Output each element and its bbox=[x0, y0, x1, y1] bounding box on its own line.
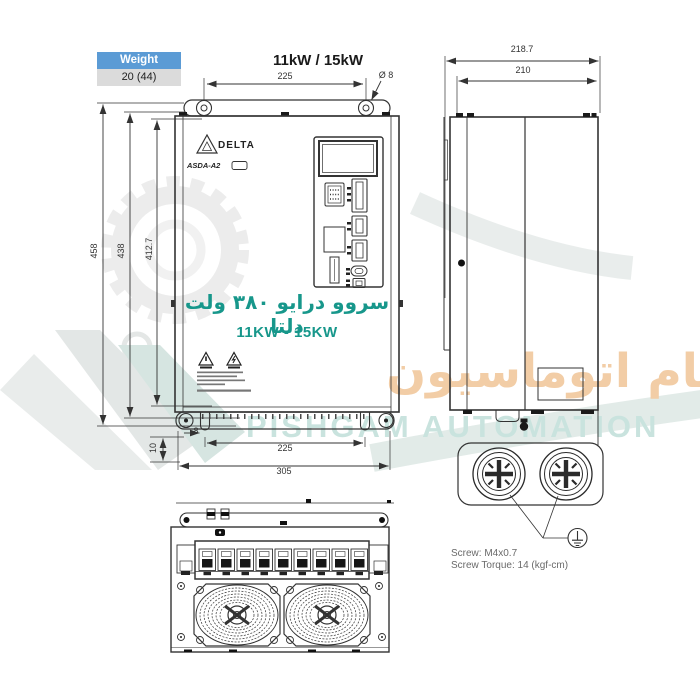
dim-bottom-hole-spacing: 225 bbox=[261, 444, 309, 454]
technical-drawing bbox=[0, 0, 700, 700]
dim-slot-width: 8 bbox=[189, 427, 203, 437]
warning-text-lines bbox=[197, 372, 251, 392]
page-background: پیشگام اتوماسیون PISHGAM AUTOMATION bbox=[0, 0, 700, 700]
ground-icon bbox=[568, 529, 587, 548]
dim-height-body: 438 bbox=[117, 229, 127, 273]
screw-torque-text: Screw Torque: 14 (kgf-cm) bbox=[451, 560, 568, 571]
dim-width-total: 305 bbox=[260, 467, 308, 477]
bottom-view-drawing bbox=[171, 499, 394, 652]
screw-spec-text: Screw: M4x0.7 bbox=[451, 548, 517, 559]
side-dimension-lines bbox=[445, 56, 600, 298]
screw-detail-drawing bbox=[458, 443, 603, 548]
dim-bottom-offset: 10 bbox=[149, 426, 159, 470]
weight-table: Weight 20 (44) bbox=[97, 52, 181, 86]
delta-logo-icon bbox=[197, 135, 217, 153]
weight-table-value: 20 (44) bbox=[97, 69, 181, 86]
front-view-drawing bbox=[171, 100, 403, 430]
page-title: 11kW / 15kW bbox=[238, 52, 398, 69]
terminal-block-drawing bbox=[177, 541, 388, 579]
screw-icon bbox=[473, 448, 592, 500]
fan-icon bbox=[194, 584, 370, 646]
delta-brand-text: DELTA bbox=[218, 140, 255, 151]
dim-height-total: 458 bbox=[90, 229, 100, 273]
dim-depth-body: 210 bbox=[499, 66, 547, 76]
dim-depth-total: 218.7 bbox=[494, 45, 550, 55]
dim-hole-diameter: Ø 8 bbox=[371, 71, 401, 81]
model-text: ASDA-A2 bbox=[187, 161, 220, 170]
dim-top-hole-spacing: 225 bbox=[261, 72, 309, 82]
power-range-caption: 11KW - 15KW bbox=[197, 324, 377, 341]
dim-mount-hole-spacing: 412.7 bbox=[145, 227, 155, 271]
warning-icon bbox=[199, 353, 241, 369]
weight-table-header: Weight bbox=[97, 52, 181, 69]
side-view-drawing bbox=[444, 113, 598, 446]
control-panel-drawing bbox=[314, 137, 383, 288]
